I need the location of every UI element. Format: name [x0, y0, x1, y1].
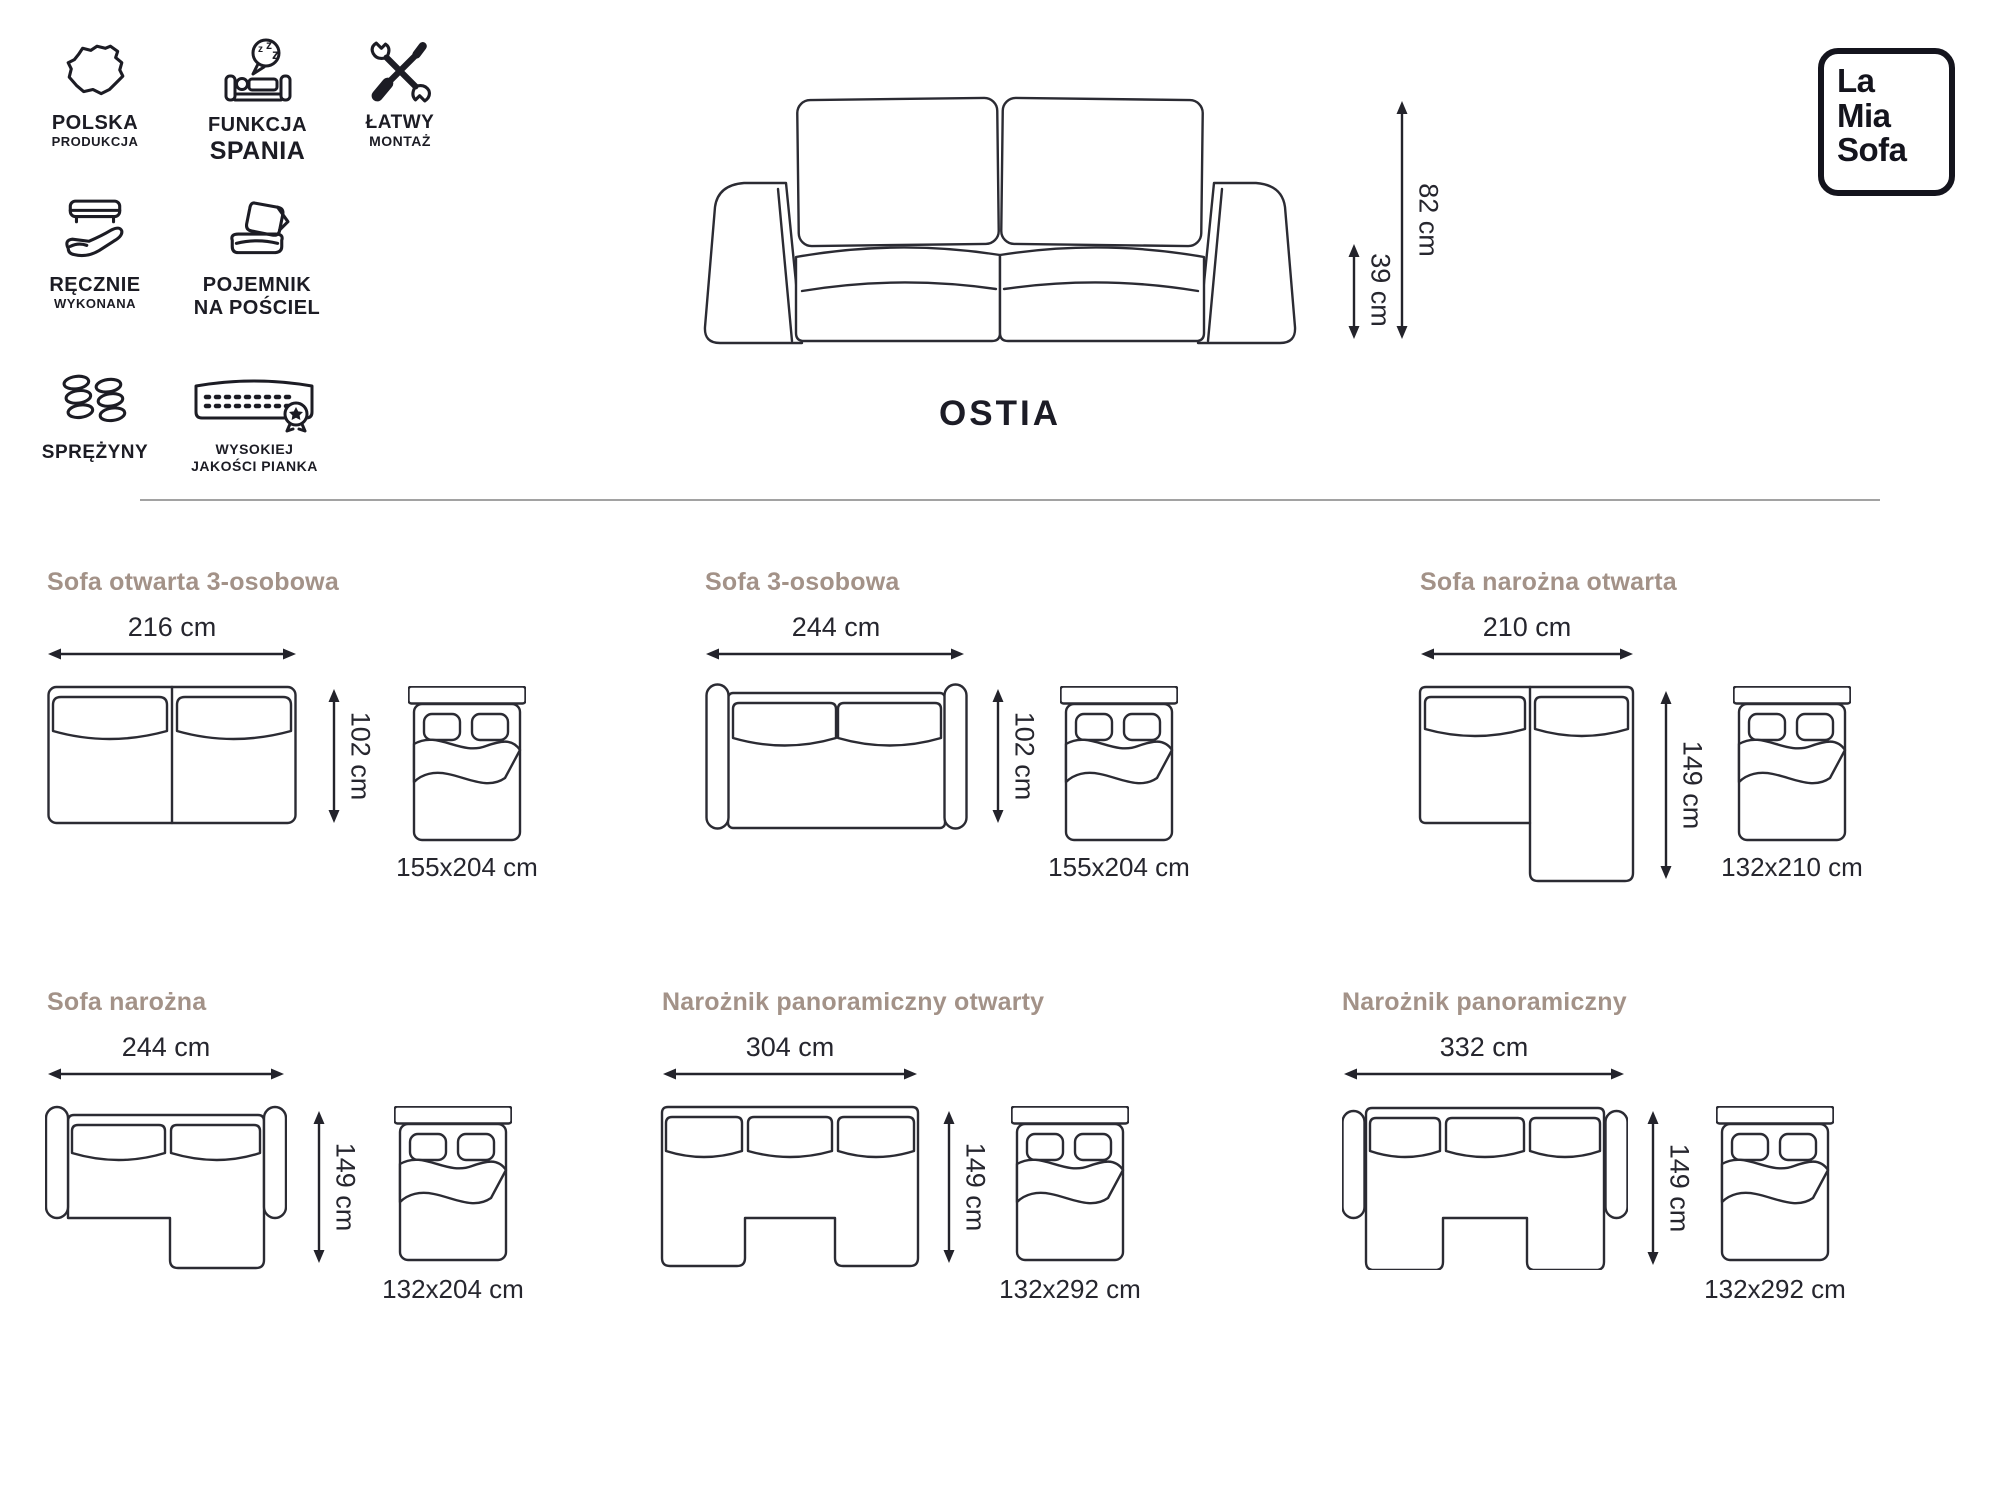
bed-icon — [1011, 1106, 1129, 1262]
handmade-icon — [60, 198, 130, 266]
feature-sleep-function: z z z FUNKCJA SPANIA — [190, 38, 325, 166]
bed-icon — [1733, 686, 1851, 842]
width-label: 216 cm — [72, 612, 272, 643]
depth-arrow — [990, 688, 1006, 824]
bed-size-label: 132x292 cm — [1665, 1274, 1885, 1305]
brand-logo: La Mia Sofa — [1818, 48, 1955, 196]
depth-label: 149 cm — [1664, 1144, 1695, 1233]
section-title: Sofa narożna otwarta — [1420, 568, 1677, 597]
width-label: 244 cm — [66, 1032, 266, 1063]
depth-arrow — [1645, 1110, 1661, 1266]
quality-foam-icon — [189, 372, 321, 434]
svg-text:z: z — [272, 46, 279, 62]
bedding-container-icon — [224, 198, 290, 266]
section-title: Narożnik panoramiczny otwarty — [662, 988, 1044, 1017]
sleep-function-icon: z z z — [222, 38, 294, 106]
bed-size-label: 132x292 cm — [960, 1274, 1180, 1305]
feature-bedding-container: POJEMNIK NA POŚCIEL — [182, 198, 332, 320]
feature-sublabel: SPANIA — [190, 136, 325, 166]
height-arrow — [1394, 100, 1410, 340]
feature-handmade: RĘCZNIE WYKONANA — [30, 198, 160, 312]
sofa-top-view-panoramic-arms — [1342, 1105, 1628, 1270]
sofa-front-view — [690, 95, 1310, 347]
feature-poland: POLSKA PRODUKCJA — [30, 40, 160, 150]
width-label: 304 cm — [690, 1032, 890, 1063]
feature-label: SPRĘŻYNY — [30, 442, 160, 463]
width-label: 332 cm — [1384, 1032, 1584, 1063]
section-title: Sofa otwarta 3-osobowa — [47, 568, 339, 597]
bed-icon — [1716, 1106, 1834, 1262]
brand-line: Mia — [1837, 99, 1949, 134]
depth-label: 149 cm — [960, 1143, 991, 1232]
depth-label: 149 cm — [330, 1143, 361, 1232]
feature-label: ŁATWY — [345, 112, 455, 133]
width-arrow — [1420, 646, 1634, 662]
brand-line: La — [1837, 64, 1949, 99]
width-arrow — [47, 646, 297, 662]
feature-sublabel: WYKONANA — [30, 296, 160, 312]
width-label: 244 cm — [736, 612, 936, 643]
feature-sublabel: MONTAŻ — [345, 133, 455, 150]
width-arrow — [705, 646, 965, 662]
springs-icon — [61, 368, 129, 434]
feature-easy-assembly: ŁATWY MONTAŻ — [345, 40, 455, 150]
tools-icon — [369, 40, 431, 104]
spec-sheet: POLSKA PRODUKCJA z z z FUNKCJA SPANIA ŁA… — [0, 0, 2000, 1500]
section-title: Sofa 3-osobowa — [705, 568, 900, 597]
section-title: Narożnik panoramiczny — [1342, 988, 1627, 1017]
height-label: 82 cm — [1413, 183, 1444, 257]
feature-label: POJEMNIK — [182, 274, 332, 296]
depth-arrow — [311, 1110, 327, 1264]
sofa-top-view-open — [47, 685, 297, 825]
bed-size-label: 155x204 cm — [357, 852, 577, 883]
depth-label: 102 cm — [1009, 712, 1040, 801]
depth-arrow — [1658, 690, 1674, 880]
feature-sublabel: NA POŚCIEL — [182, 296, 332, 320]
sofa-top-view-panoramic-open — [660, 1105, 920, 1268]
brand-line: Sofa — [1837, 133, 1949, 168]
feature-quality-foam: WYSOKIEJ JAKOŚCI PIANKA — [172, 372, 337, 474]
seat-height-label: 39 cm — [1365, 253, 1396, 327]
depth-arrow — [941, 1110, 957, 1264]
depth-label: 149 cm — [1677, 741, 1708, 830]
bed-size-label: 132x210 cm — [1682, 852, 1902, 883]
feature-label: RĘCZNIE — [30, 274, 160, 296]
sofa-top-view-corner-arms — [45, 1103, 287, 1270]
feature-label: POLSKA — [30, 112, 160, 134]
depth-arrow — [326, 688, 342, 824]
section-title: Sofa narożna — [47, 988, 206, 1017]
width-arrow — [662, 1066, 918, 1082]
bed-icon — [1060, 686, 1178, 842]
feature-springs: SPRĘŻYNY — [30, 368, 160, 463]
width-arrow — [47, 1066, 285, 1082]
sofa-top-view-corner-open — [1418, 685, 1637, 883]
divider — [140, 499, 1880, 501]
feature-sublabel: PRODUKCJA — [30, 134, 160, 150]
product-title: OSTIA — [880, 394, 1120, 434]
sofa-top-view-arms — [705, 683, 968, 830]
poland-map-icon — [62, 40, 128, 104]
seat-height-arrow — [1346, 243, 1362, 340]
feature-label: FUNKCJA — [190, 114, 325, 136]
width-label: 210 cm — [1427, 612, 1627, 643]
feature-sublabel: JAKOŚCI PIANKA — [172, 458, 337, 475]
bed-icon — [408, 686, 526, 842]
bed-size-label: 155x204 cm — [1009, 852, 1229, 883]
bed-size-label: 132x204 cm — [343, 1274, 563, 1305]
svg-text:z: z — [258, 44, 263, 55]
width-arrow — [1343, 1066, 1625, 1082]
bed-icon — [394, 1106, 512, 1262]
feature-label: WYSOKIEJ — [172, 442, 337, 458]
depth-label: 102 cm — [345, 712, 376, 801]
